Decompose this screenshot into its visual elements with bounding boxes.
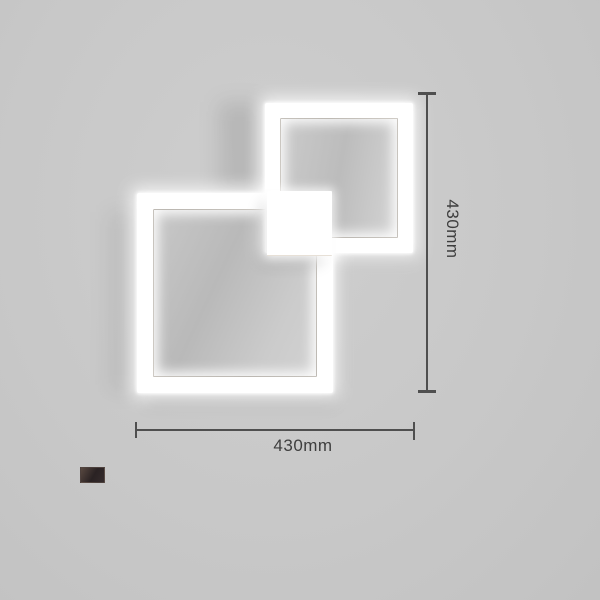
width-dimension-endcap [135, 422, 137, 438]
cast-shadow [219, 102, 261, 194]
cast-shadow [108, 212, 136, 392]
width-dimension-label: 430mm [273, 436, 332, 456]
height-dimension-label: 430mm [442, 199, 462, 258]
width-dimension-line [136, 429, 415, 431]
height-dimension-endcap [418, 390, 436, 393]
product-image: 430mm 430mm [0, 0, 600, 600]
width-dimension-endcap [413, 422, 415, 440]
color-swatch-dark-finish[interactable] [80, 467, 105, 483]
cast-shadow [336, 253, 412, 262]
cast-shadow [334, 262, 343, 388]
center-connector-box [267, 191, 332, 256]
height-dimension-line [426, 93, 428, 393]
height-dimension-endcap [418, 92, 436, 95]
